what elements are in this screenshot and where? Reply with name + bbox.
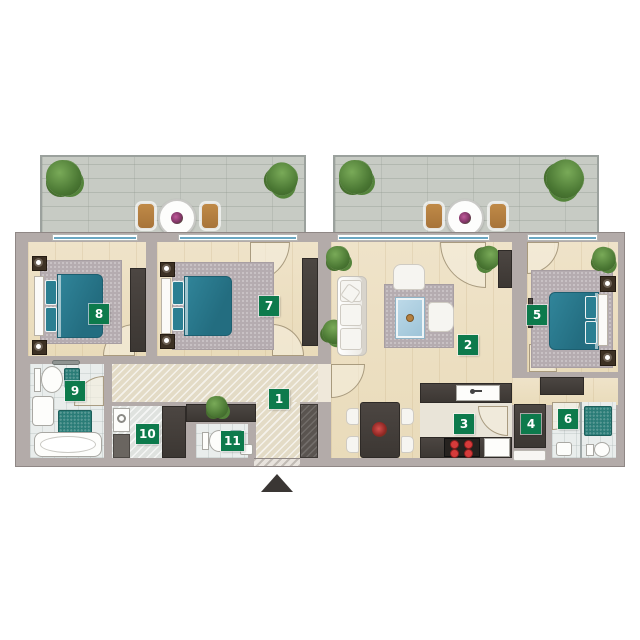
towel-rail xyxy=(52,360,80,365)
balcony-left-chair xyxy=(201,203,219,229)
room-label-1: 1 xyxy=(269,389,289,409)
room-label-6: 6 xyxy=(558,409,578,429)
dining-chair xyxy=(346,408,359,425)
room-label-10: 10 xyxy=(136,424,159,444)
toilet-tank xyxy=(202,432,209,450)
living-plant-icon xyxy=(326,246,350,270)
bedroom-7-bed xyxy=(184,276,232,336)
bedroom-7-wardrobe xyxy=(302,258,318,346)
room-label-2: 2 xyxy=(458,335,478,355)
dining-centerpiece-icon xyxy=(372,422,387,437)
room-label-8: 8 xyxy=(89,304,109,324)
room-label-9: 9 xyxy=(65,381,85,401)
dining-chair xyxy=(401,408,414,425)
lamp-icon xyxy=(162,264,171,273)
bathroom-9-toilet xyxy=(41,366,63,393)
room-label-7: 7 xyxy=(259,296,279,316)
closet-10-wardrobe xyxy=(162,406,186,458)
bathroom-6-sink xyxy=(556,442,572,456)
balcony-left-chair xyxy=(137,203,155,229)
bathtub-basin xyxy=(40,436,96,453)
balcony-right-table-flower-icon xyxy=(459,212,471,224)
balcony-left-table-flower-icon xyxy=(171,212,183,224)
armchair xyxy=(393,264,425,290)
kitchen-sink xyxy=(456,385,500,401)
faucet-icon xyxy=(474,390,482,392)
bathroom-9-sink xyxy=(32,396,54,426)
wall-niche xyxy=(513,450,546,461)
bedroom-5-headboard xyxy=(598,294,608,346)
sofa-cushion xyxy=(340,304,362,326)
kitchen-appliance xyxy=(484,438,510,457)
burner-icon xyxy=(450,449,459,458)
lamp-icon xyxy=(603,279,612,288)
bedroom-7-headboard xyxy=(161,278,171,334)
dining-chair xyxy=(401,436,414,453)
bathroom-6-toilet xyxy=(594,442,610,457)
toilet-tank xyxy=(34,368,41,392)
entrance-door-threshold xyxy=(254,458,300,467)
lamp-icon xyxy=(34,342,43,351)
burner-icon xyxy=(450,440,459,449)
dining-chair xyxy=(346,436,359,453)
pillow xyxy=(585,296,597,319)
window-glass xyxy=(180,237,296,239)
pillow xyxy=(585,321,597,344)
pillow xyxy=(172,281,184,305)
lamp-icon xyxy=(603,353,612,362)
corridor-living-doorway xyxy=(318,364,331,402)
pillow xyxy=(45,307,57,332)
shower-glass xyxy=(580,402,582,458)
lamp-icon xyxy=(162,336,171,345)
living-wardrobe xyxy=(498,250,512,288)
burner-icon xyxy=(464,440,473,449)
washing-machine-door-icon xyxy=(117,414,126,423)
pillow xyxy=(172,307,184,331)
room-label-11: 11 xyxy=(221,431,244,451)
room-label-3: 3 xyxy=(454,414,474,434)
window-glass xyxy=(529,237,596,239)
burner-icon xyxy=(464,449,473,458)
corridor-entry-floor xyxy=(256,402,300,458)
room-label-4: 4 xyxy=(521,414,541,434)
balcony-right-chair xyxy=(489,203,507,229)
armchair xyxy=(428,302,454,332)
closet-10-dark-floor xyxy=(113,434,130,458)
coffee-table-decor-icon xyxy=(406,314,414,322)
toilet-tank xyxy=(586,444,594,456)
balcony-right-plant-icon xyxy=(339,160,373,194)
bedroom-8-wardrobe xyxy=(130,268,146,352)
entrance-arrow xyxy=(261,474,293,492)
window-glass xyxy=(339,237,488,239)
lamp-icon xyxy=(34,258,43,267)
shower-mat xyxy=(584,406,612,436)
window-glass xyxy=(54,237,136,239)
balcony-left-plant-icon xyxy=(46,160,82,196)
entry-wardrobe xyxy=(300,404,318,458)
room-label-5: 5 xyxy=(527,305,547,325)
floor-plan-canvas: 1 2 3 4 5 6 7 8 9 10 11 xyxy=(0,0,640,640)
bedroom-5-dresser xyxy=(540,377,584,395)
bedroom-8-headboard xyxy=(34,276,44,336)
pillow xyxy=(45,280,57,305)
sideboard-plant-icon xyxy=(206,396,228,418)
balcony-right-chair xyxy=(425,203,443,229)
sofa-cushion xyxy=(340,328,362,350)
